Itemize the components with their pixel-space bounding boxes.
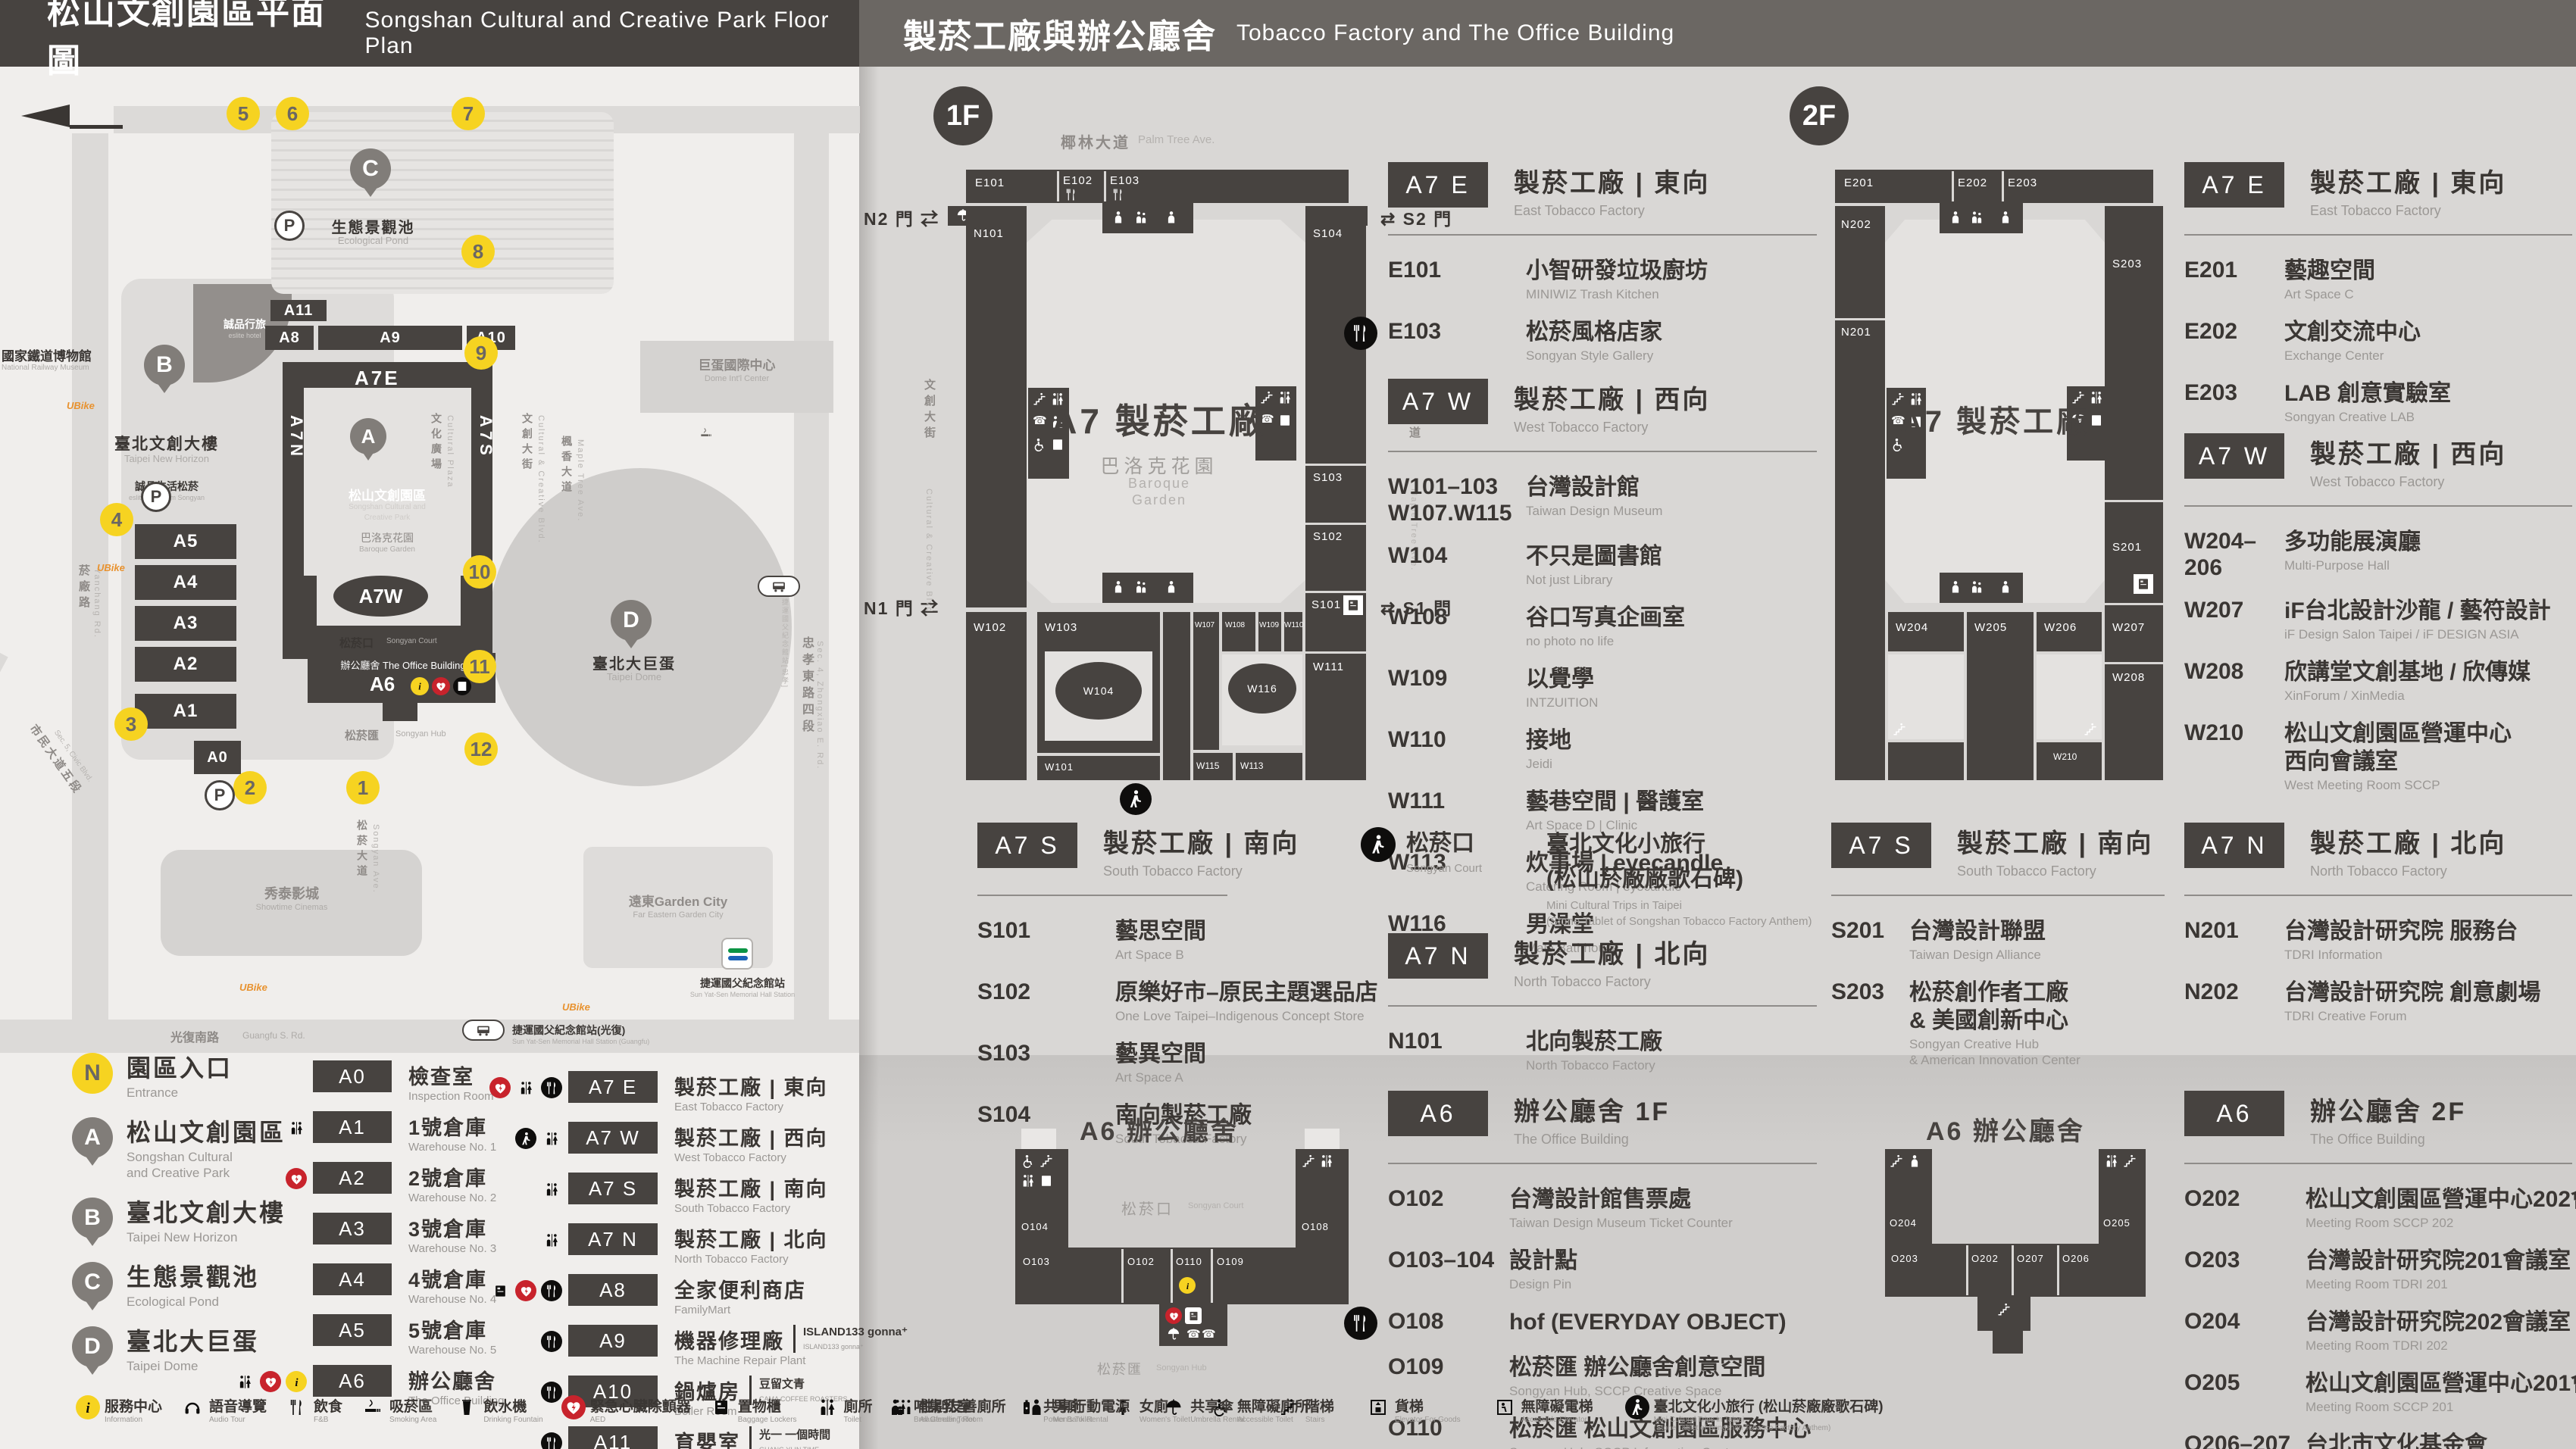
legend-building-row: A7 N 製菸工廠 | 北向 North Tobacco Factory xyxy=(467,1223,908,1266)
facility-name-en: Baggage Lockers xyxy=(738,1416,797,1424)
room-name-zh: iF台北設計沙龍 / 藝符設計 xyxy=(2284,597,2551,625)
room-code: W208 xyxy=(2184,658,2284,704)
facility-icon xyxy=(1014,1395,1039,1419)
section-title-en: North Tobacco Factory xyxy=(2310,863,2506,879)
legend-row-icons xyxy=(467,1274,562,1301)
map-element: Sun Yat-Sen Memorial Hall Station (Guang… xyxy=(512,1038,649,1045)
map-element xyxy=(432,677,450,695)
plan-element: O104 xyxy=(1021,1221,1049,1232)
section-divider xyxy=(977,895,1227,896)
legend-row-icons: i xyxy=(216,1365,307,1392)
facility-name-zh: 臺北文化小旅行 (松山菸廠廠歌石碑) xyxy=(1654,1395,1884,1416)
map-element xyxy=(462,1020,505,1041)
plan-element: W204 xyxy=(1896,621,1928,634)
room-name-en: Taiwan Design Alliance xyxy=(1909,947,2046,963)
plan-element xyxy=(1305,464,1366,466)
room-name-zh: 台灣設計研究院 創意劇場 xyxy=(2284,979,2540,1007)
map-element: 6 xyxy=(276,97,309,130)
footer-legend-item: 臺北文化小旅行 (松山菸廠廠歌石碑) Mini Cultural Trips i… xyxy=(1625,1395,1884,1432)
legend-row-icons xyxy=(467,1325,562,1352)
plan-element xyxy=(1970,580,1984,594)
plan-element xyxy=(1211,1249,1213,1303)
directory-item: W101–103 W107.W115 台灣設計館 Taiwan Design M… xyxy=(1388,473,1817,526)
map-element xyxy=(758,576,800,597)
room-code: W210 xyxy=(2184,720,2284,793)
map-element: i xyxy=(411,677,429,695)
svg-text:i: i xyxy=(295,1377,299,1389)
legend-row-icons xyxy=(216,1213,307,1219)
legend-building-row: A7 E 製菸工廠 | 東向 East Tobacco Factory xyxy=(467,1071,908,1113)
building-name-zh: 製菸工廠 | 東向 xyxy=(674,1071,828,1101)
section-title-en: South Tobacco Factory xyxy=(1103,863,1299,879)
directory-item: S203 松菸創作者工廠 & 美國創新中心 Songyan Creative H… xyxy=(1831,979,2165,1068)
section-title-en: West Tobacco Factory xyxy=(2310,474,2506,490)
plan-element: W210 xyxy=(2053,751,2077,762)
room-code: E202 xyxy=(2184,318,2284,364)
room-code: W111 xyxy=(1388,788,1526,833)
section-title-zh: 製菸工廠 | 南向 xyxy=(1957,823,2153,860)
facility-icon xyxy=(561,1395,586,1419)
building-name-en: North Tobacco Factory xyxy=(674,1253,828,1266)
songyan-court-section: 松菸口 Songyan Court 臺北文化小旅行 (松山菸廠廠歌石碑) Min… xyxy=(1361,827,1812,929)
legend-building-row: A8 全家便利商店 FamilyMart xyxy=(467,1274,908,1316)
room-code: E203 xyxy=(2184,379,2284,425)
directory-section: A7 W 製菸工廠 | 西向 West Tobacco Factory W204… xyxy=(2184,433,2572,809)
room-code: O203 xyxy=(2184,1247,2306,1292)
map-element: Cultural & Creative Blvd. xyxy=(536,415,546,544)
plan-element xyxy=(1165,580,1178,594)
a6-map-title: A6 辦公廳舍 xyxy=(1926,1110,2085,1148)
map-element xyxy=(697,424,715,442)
plan-element xyxy=(1835,206,1885,780)
section-items: S201 台灣設計聯盟 Taiwan Design Alliance S203 … xyxy=(1831,917,2165,1068)
footer-legend-item: 吸菸區 Smoking Area xyxy=(361,1395,436,1424)
tenant-name-en: ISLAND133 gonna⁺ xyxy=(803,1343,864,1351)
facility-icon xyxy=(1277,1395,1301,1419)
room-name-zh: hof (EVERYDAY OBJECT) xyxy=(1509,1308,1787,1336)
room-name-en: Meeting Room SCCP 201 xyxy=(2306,1399,2576,1415)
plan-element xyxy=(1222,612,1255,651)
directory-item: O206–207 台北市文化基金會 松山文創園區營運中心 Taipei Cult… xyxy=(2184,1431,2572,1449)
left-header-title-en: Songshan Cultural and Creative Park Floo… xyxy=(365,8,859,59)
facility-icon xyxy=(541,1229,562,1251)
legend-building-row: A0 檢查室 Inspection Room xyxy=(216,1060,504,1103)
section-title-zh: 製菸工廠 | 北向 xyxy=(2310,823,2506,860)
room-name-zh: 以覺學 xyxy=(1526,665,1598,693)
directory-section: A7 N 製菸工廠 | 北向 North Tobacco Factory N20… xyxy=(2184,823,2572,1040)
building-code-badge: A7 N xyxy=(568,1223,658,1255)
directory-item: E201 藝趣空間 Art Space C xyxy=(2184,257,2572,302)
map-element: 忠孝東路四段 xyxy=(797,636,815,736)
directory-item: E202 文創交流中心 Exchange Center xyxy=(2184,318,2572,364)
map-element: A6 xyxy=(370,673,395,696)
section-divider xyxy=(1388,234,1817,236)
legend-row-icons xyxy=(216,1111,307,1138)
plan-element: S203 xyxy=(2112,258,2142,270)
plan-element xyxy=(1134,580,1148,594)
legend-building-row: A4 4號倉庫 Warehouse No. 4 xyxy=(216,1263,504,1306)
building-code-badge: A0 xyxy=(313,1060,392,1092)
room-code: N202 xyxy=(2184,979,2284,1024)
tenant-name: 光一 一個時間 xyxy=(759,1429,830,1441)
plan-element: Songyan Hub xyxy=(1156,1363,1207,1372)
facility-name-zh: 無障礙電梯 xyxy=(1521,1395,1593,1416)
plan-element xyxy=(1970,211,1984,224)
facility-name-en: Power Bank Rental xyxy=(1043,1416,1130,1424)
facility-icon xyxy=(489,1280,511,1301)
facility-icon xyxy=(1161,1395,1186,1419)
floor-plan-1f: E101E102E103N101S104S103S102S101W111☎☎A7… xyxy=(943,170,1373,785)
plan-element xyxy=(1111,580,1125,594)
building-name-zh: 育嬰室 xyxy=(674,1426,740,1449)
plan-element: O203 xyxy=(1891,1253,1918,1264)
facility-name-zh: 服務中心 xyxy=(105,1395,162,1416)
room-name-en: Jeidi xyxy=(1526,756,1571,772)
directory-item: E203 LAB 創意實驗室 Songyan Creative LAB xyxy=(2184,379,2572,425)
plan-element xyxy=(1908,1154,1921,1168)
directory-item: O204 台灣設計研究院202會議室 Meeting Room TDRI 202 xyxy=(2184,1308,2572,1354)
map-element: A4 xyxy=(135,565,236,600)
plan-element: O206 xyxy=(2062,1253,2090,1264)
section-badge: A7 S xyxy=(1831,823,1931,868)
room-name-en: Exchange Center xyxy=(2284,348,2421,364)
section-divider xyxy=(1388,451,1817,452)
map-element: Guangfu S. Rd. xyxy=(242,1030,305,1041)
legend-row-icons xyxy=(467,1122,562,1149)
footer-legend-item: 飲食 F&B xyxy=(285,1395,342,1424)
building-code-badge: A2 xyxy=(313,1162,392,1194)
legend-marker: D xyxy=(72,1326,127,1374)
map-element xyxy=(383,703,417,721)
plan-element xyxy=(1057,171,1059,201)
map-element: Yanchang Rd. xyxy=(92,568,102,639)
legend-row-icons xyxy=(467,1223,562,1251)
section-title-en: West Tobacco Factory xyxy=(1514,420,1710,436)
footer-legend-item: 語音導覽 Audio Tour xyxy=(180,1395,267,1424)
facility-icon: i xyxy=(76,1395,100,1419)
map-element xyxy=(21,105,70,127)
legend-building-row: A7 S 製菸工廠 | 南向 South Tobacco Factory xyxy=(467,1173,908,1215)
section-title-en: South Tobacco Factory xyxy=(1957,863,2153,879)
room-name-zh: 台灣設計研究院201會議室 xyxy=(2306,1247,2571,1275)
building-code-badge: A3 xyxy=(313,1213,392,1244)
landmark-marker-icon: D xyxy=(72,1326,113,1367)
facility-icon xyxy=(234,1371,255,1392)
a6-directory-section: A6 辦公廳舍 2F The Office Building O202 xyxy=(2184,1091,2572,1449)
plan-element: O108 xyxy=(1302,1221,1329,1232)
directory-section: A7 N 製菸工廠 | 北向 North Tobacco Factory N10… xyxy=(1388,933,1817,1089)
map-element: 光復南路 xyxy=(170,1027,219,1045)
plan-element: W101 xyxy=(1045,761,1074,773)
room-code: S103 xyxy=(977,1040,1115,1085)
legend-building-row: A1 1號倉庫 Warehouse No. 1 xyxy=(216,1111,504,1154)
map-element: National Railway Museum xyxy=(2,364,89,372)
plan-element xyxy=(1111,211,1125,224)
room-name-zh: 台灣設計館售票處 xyxy=(1509,1185,1733,1213)
map-element: 2 xyxy=(233,771,267,804)
room-name-zh: 藝異空間 xyxy=(1115,1040,1206,1068)
plan-element xyxy=(1193,612,1219,750)
room-name-en: iF Design Salon Taipei / iF DESIGN ASIA xyxy=(2284,626,2551,642)
map-element: 11 xyxy=(463,650,496,683)
section-header: A7 S 製菸工廠 | 南向 South Tobacco Factory xyxy=(977,823,1227,879)
map-element: Showtime Cinemas xyxy=(227,903,356,912)
map-element: Maple Tree Ave. xyxy=(576,439,585,522)
section-badge: A7 N xyxy=(2184,823,2284,868)
facility-name-en: Smoking Area xyxy=(389,1416,436,1424)
section-divider xyxy=(2184,505,2572,507)
plan-element xyxy=(1021,1154,1035,1168)
building-code-badge: A11 xyxy=(568,1426,658,1449)
plan-element: N101 xyxy=(974,227,1004,240)
map-element: D xyxy=(611,600,652,641)
plan-element: W109 xyxy=(1259,621,1279,629)
plan-element: i xyxy=(1179,1277,1196,1294)
room-code: W207 xyxy=(2184,597,2284,642)
section-items: W204–206 多功能展演廳 Multi-Purpose Hall W207 … xyxy=(2184,528,2572,793)
map-element: Sun Yat-Sen Memorial Hall Station xyxy=(667,991,818,998)
plan-element: O207 xyxy=(2017,1253,2044,1264)
facility-name-en: Audio Tour xyxy=(209,1416,267,1424)
room-name-en: Songyan Creative LAB xyxy=(2284,409,2451,425)
map-element: 10 xyxy=(463,555,496,589)
plan-element: Songyan Court xyxy=(1188,1201,1243,1210)
plan-element xyxy=(2123,1154,2137,1168)
plan-element: W111 xyxy=(1313,660,1344,673)
plan-element xyxy=(2105,1154,2118,1168)
footer-legend-right: 哺集乳室 Breastfeeding Room 共享行動電源 Power Ban… xyxy=(885,1395,1884,1432)
building-code-badge: A1 xyxy=(313,1111,392,1143)
facility-name-zh: 貨梯 xyxy=(1395,1395,1461,1416)
plan-element: Baroque xyxy=(1034,476,1284,492)
room-name-en: Meeting Room TDRI 201 xyxy=(2306,1276,2571,1292)
legend-building-row: A11 育嬰室光一 一個時間GUANG YI IN TIME The Nurse… xyxy=(467,1426,908,1449)
legend-marker: C xyxy=(72,1262,127,1310)
building-code-badge: A7 W xyxy=(568,1122,658,1154)
room-code: O102 xyxy=(1388,1185,1509,1231)
facility-icon xyxy=(1493,1395,1517,1419)
map-element: 松菸匯 xyxy=(345,727,379,743)
plan-element: 松菸口 xyxy=(1121,1197,1174,1219)
facility-name-en: AED xyxy=(590,1416,691,1424)
room-code: S101 xyxy=(977,917,1115,963)
room-name-en: North Tobacco Factory xyxy=(1526,1057,1662,1073)
street-label: 文創大街 xyxy=(921,379,937,442)
plan-element xyxy=(1165,1307,1182,1324)
street-label: N2 門 ⇄ xyxy=(864,205,939,230)
street-label xyxy=(1120,783,1152,815)
room-name-zh: 原樂好市–原民主題選品店 xyxy=(1115,979,1378,1007)
directory-item: W108 谷口写真企画室 no photo no life xyxy=(1388,604,1817,649)
plan-element xyxy=(966,612,1027,780)
section-header: A7 W 製菸工廠 | 西向 West Tobacco Factory xyxy=(1388,379,1817,436)
plan-element: W110 xyxy=(1284,621,1303,629)
section-badge: A7 W xyxy=(1388,379,1488,424)
plan-element xyxy=(1967,612,2034,780)
room-name-en: Design Pin xyxy=(1509,1276,1577,1292)
facility-icon xyxy=(286,1168,307,1189)
facility-icon xyxy=(541,1331,562,1352)
svg-text:i: i xyxy=(418,682,421,692)
footer-legend-item: 共享行動電源 Power Bank Rental xyxy=(1014,1395,1130,1432)
plan-element xyxy=(1121,1249,1124,1303)
facility-name-en: Drinking Fountain xyxy=(483,1416,542,1424)
map-element: 8 xyxy=(461,235,495,268)
plan-element: O204 xyxy=(1890,1217,1917,1229)
map-element: C xyxy=(350,148,391,189)
plan-element: O102 xyxy=(1127,1256,1155,1267)
building-name-en: East Tobacco Factory xyxy=(674,1101,828,1113)
plan-element: E201 xyxy=(1844,176,1874,189)
map-element: 國家鐵道博物館 xyxy=(2,345,92,364)
plan-element xyxy=(2084,723,2097,736)
plan-element: N201 xyxy=(1841,326,1871,339)
map-element: 7 xyxy=(452,97,485,130)
plan-element: W208 xyxy=(2112,671,2145,684)
plan-element: W108 xyxy=(1225,621,1245,629)
plan-element: S102 xyxy=(1313,530,1343,543)
plan-element: A7 製菸工廠 xyxy=(1885,397,2105,441)
room-name-zh: 不只是圖書館 xyxy=(1526,542,1662,570)
building-code-badge: A9 xyxy=(568,1325,658,1357)
room-name-zh: 松菸匯 辦公廳舍創意空間 xyxy=(1509,1354,1765,1382)
legend-buildings-b: A7 E 製菸工廠 | 東向 East Tobacco Factory A7 W… xyxy=(467,1071,908,1449)
building-name-en: FamilyMart xyxy=(674,1304,806,1316)
facility-name-en: Information xyxy=(105,1416,162,1424)
room-name-en: Songyan Creative Hub & American Innovati… xyxy=(1909,1036,2080,1068)
room-name-zh: 接地 xyxy=(1526,726,1571,754)
facility-icon xyxy=(260,1371,281,1392)
street-label: Palm Tree Ave. xyxy=(1138,133,1215,146)
item-dining-icon xyxy=(1344,1307,1377,1340)
room-name-en: MINIWIZ Trash Kitchen xyxy=(1526,286,1708,302)
plan-element xyxy=(1163,612,1190,780)
map-element: UBike xyxy=(562,1001,590,1013)
tenant-name: 豆留文青 xyxy=(759,1378,805,1391)
footer-legend-item: 緊急心臟除顫器 AED xyxy=(561,1395,691,1424)
room-code: E103 xyxy=(1388,318,1526,364)
plan-element xyxy=(1171,1249,1173,1303)
map-element xyxy=(271,112,614,294)
page-canvas: 松山文創園區平面圖 Songshan Cultural and Creative… xyxy=(0,0,2576,1449)
plan-element xyxy=(966,206,1027,607)
plan-element xyxy=(2002,171,2004,201)
room-code: O204 xyxy=(2184,1308,2306,1354)
footer-legend-item: i 服務中心 Information xyxy=(76,1395,162,1424)
directory-item: O108 hof (EVERYDAY OBJECT) xyxy=(1388,1308,1817,1338)
section-title-en: The Office Building xyxy=(1514,1132,1670,1148)
facility-icon xyxy=(515,1280,536,1301)
legend-marker: A xyxy=(72,1117,127,1181)
room-name-zh: 松山文創園區營運中心 西向會議室 xyxy=(2284,720,2512,776)
svg-text:i: i xyxy=(1186,1280,1189,1291)
room-name-en: TDRI Information xyxy=(2284,947,2518,963)
plan-element: O110 xyxy=(1176,1256,1202,1267)
map-element: Far Eastern Garden City xyxy=(595,910,761,920)
legend-row-icons xyxy=(216,1162,307,1189)
room-code: O108 xyxy=(1388,1308,1509,1338)
plan-element xyxy=(1134,211,1148,224)
plan-element xyxy=(1165,211,1178,224)
svg-text:i: i xyxy=(86,1401,90,1416)
footer-legend-item: 飲水機 Drinking Fountain xyxy=(455,1395,542,1424)
plan-element xyxy=(2137,577,2150,591)
floor-1f-badge: 1F xyxy=(933,86,993,145)
map-element: A2 xyxy=(135,647,236,682)
room-name-en: West Meeting Room SCCP xyxy=(2284,777,2512,793)
facility-name-zh: 哺集乳室 xyxy=(914,1395,983,1416)
section-divider xyxy=(2184,1163,2572,1164)
floor-2f-badge: 2F xyxy=(1790,86,1849,145)
section-badge: A6 xyxy=(2184,1091,2284,1136)
plan-element xyxy=(1952,171,1954,201)
plan-element: S104 xyxy=(1313,227,1343,240)
plan-element xyxy=(2105,603,2163,605)
directory-item: N201 台灣設計研究院 服務台 TDRI Information xyxy=(2184,917,2572,963)
section-title-zh: 辦公廳舍 1F xyxy=(1514,1091,1670,1128)
directory-item: W110 接地 Jeidi xyxy=(1388,726,1817,772)
map-element: 巴洛克花園 xyxy=(323,530,452,545)
section-title-en: North Tobacco Factory xyxy=(1514,974,1710,990)
plan-element xyxy=(1888,742,1964,780)
facility-icon xyxy=(1366,1395,1390,1419)
plan-element xyxy=(1993,1331,2023,1354)
map-element: Songyan Court xyxy=(386,637,437,645)
facility-name-en: Accessible Elevator xyxy=(1521,1416,1593,1424)
plan-element xyxy=(1999,211,2012,224)
plan-element xyxy=(1997,1303,2011,1316)
room-name-en: Songyan Style Gallery xyxy=(1526,348,1662,364)
legend-row-icons xyxy=(467,1173,562,1200)
map-element: Songyan Ave. xyxy=(371,824,380,894)
directory-item: O103–104 設計點 Design Pin xyxy=(1388,1247,1817,1292)
plan-element xyxy=(966,170,1349,203)
section-badge: A7 N xyxy=(1388,933,1488,979)
room-code: O206–207 xyxy=(2184,1431,2306,1449)
map-element: 捷運國父紀念館站[忠孝] xyxy=(780,598,790,689)
facility-name-zh: 語音導覽 xyxy=(209,1395,267,1416)
facility-name-en: Mini Cultural Trips in Taipei (Stone Tab… xyxy=(1654,1416,1884,1432)
room-code: W108 xyxy=(1388,604,1526,649)
left-header-title-zh: 松山文創園區平面圖 xyxy=(47,0,345,82)
plan-element: E102 xyxy=(1063,174,1093,187)
map-element: Taipei Dome xyxy=(562,671,706,682)
court-desc-zh2: (松山菸廠廠歌石碑) xyxy=(1546,862,1812,897)
building-name-zh: 製菸工廠 | 南向 xyxy=(674,1173,828,1202)
section-badge: A7 E xyxy=(2184,162,2284,208)
footer-legend-item: 階梯 Stairs xyxy=(1277,1395,1334,1432)
directory-item: O205 松山文創園區營運中心201會議室 Meeting Room SCCP … xyxy=(2184,1369,2572,1415)
room-code: O109 xyxy=(1388,1354,1509,1399)
item-dining-icon xyxy=(1344,317,1377,350)
map-element: A7S xyxy=(476,415,496,459)
directory-item: S102 原樂好市–原民主題選品店 One Love Taipei–Indige… xyxy=(977,979,1227,1024)
map-element: 松菸口 xyxy=(339,635,374,651)
section-items: O202 松山文創園區營運中心202會議室 Meeting Room SCCP … xyxy=(2184,1185,2572,1449)
facility-name-en: Stairs xyxy=(1305,1416,1334,1424)
directory-item: N101 北向製菸工廠 North Tobacco Factory xyxy=(1388,1028,1817,1073)
facility-icon xyxy=(180,1395,205,1419)
building-name-zh: 製菸工廠 | 西向 xyxy=(674,1122,828,1151)
plan-element xyxy=(1305,651,1366,654)
facility-icon xyxy=(885,1395,909,1419)
facility-icon xyxy=(489,1077,511,1098)
section-badge: A7 E xyxy=(1388,162,1488,208)
plan-element xyxy=(1346,598,1360,612)
room-name-zh: 台灣設計研究院 服務台 xyxy=(2284,917,2518,945)
facility-icon xyxy=(541,1280,562,1301)
plan-element xyxy=(1949,211,1962,224)
